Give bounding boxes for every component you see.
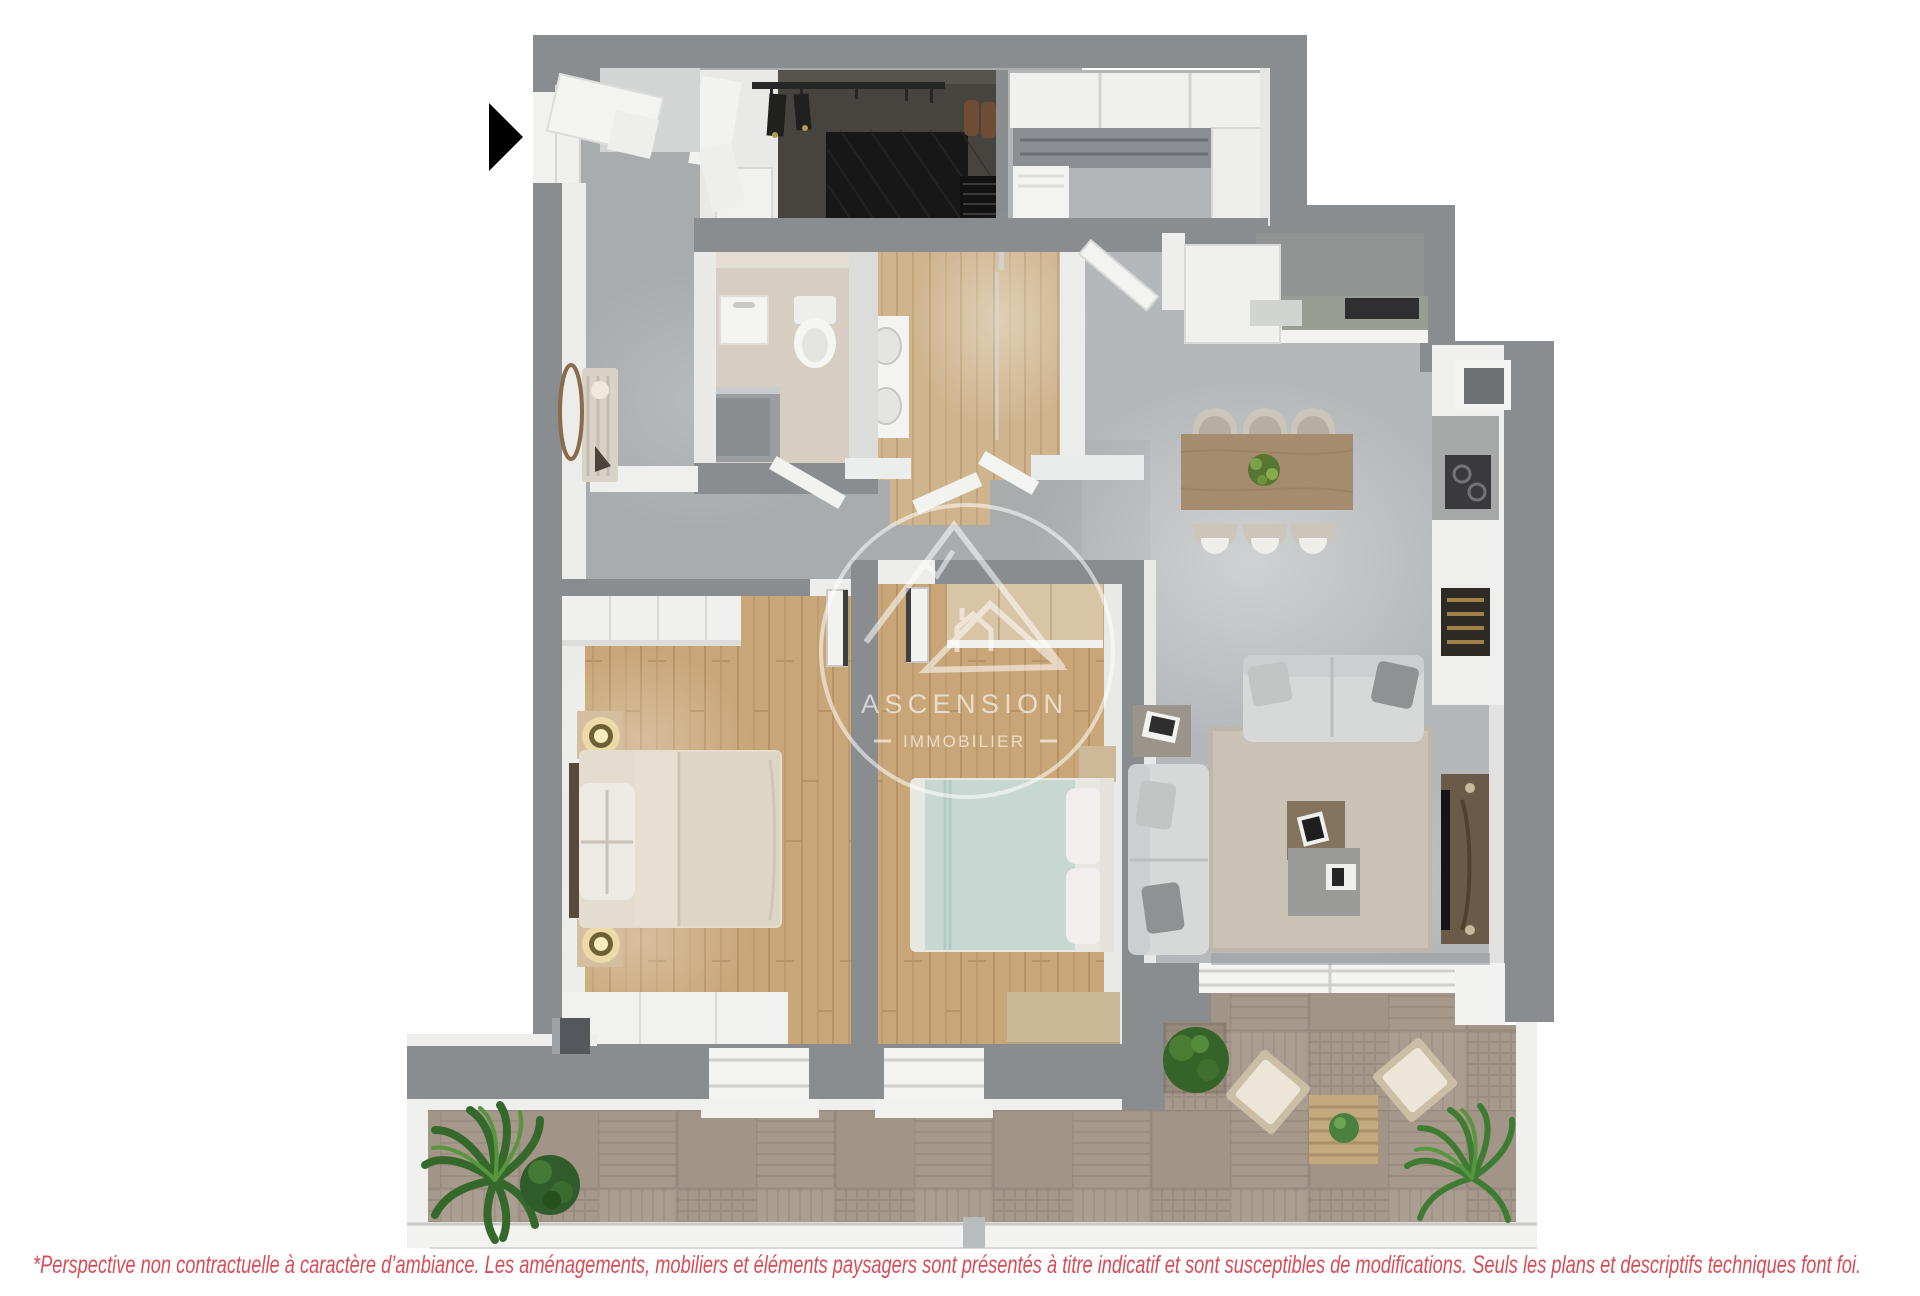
svg-text:*Perspective non contractuelle: *Perspective non contractuelle à caractè… bbox=[33, 1251, 1861, 1279]
svg-text:IMMOBILIER: IMMOBILIER bbox=[903, 732, 1027, 751]
svg-text:ASCENSION: ASCENSION bbox=[861, 689, 1069, 719]
